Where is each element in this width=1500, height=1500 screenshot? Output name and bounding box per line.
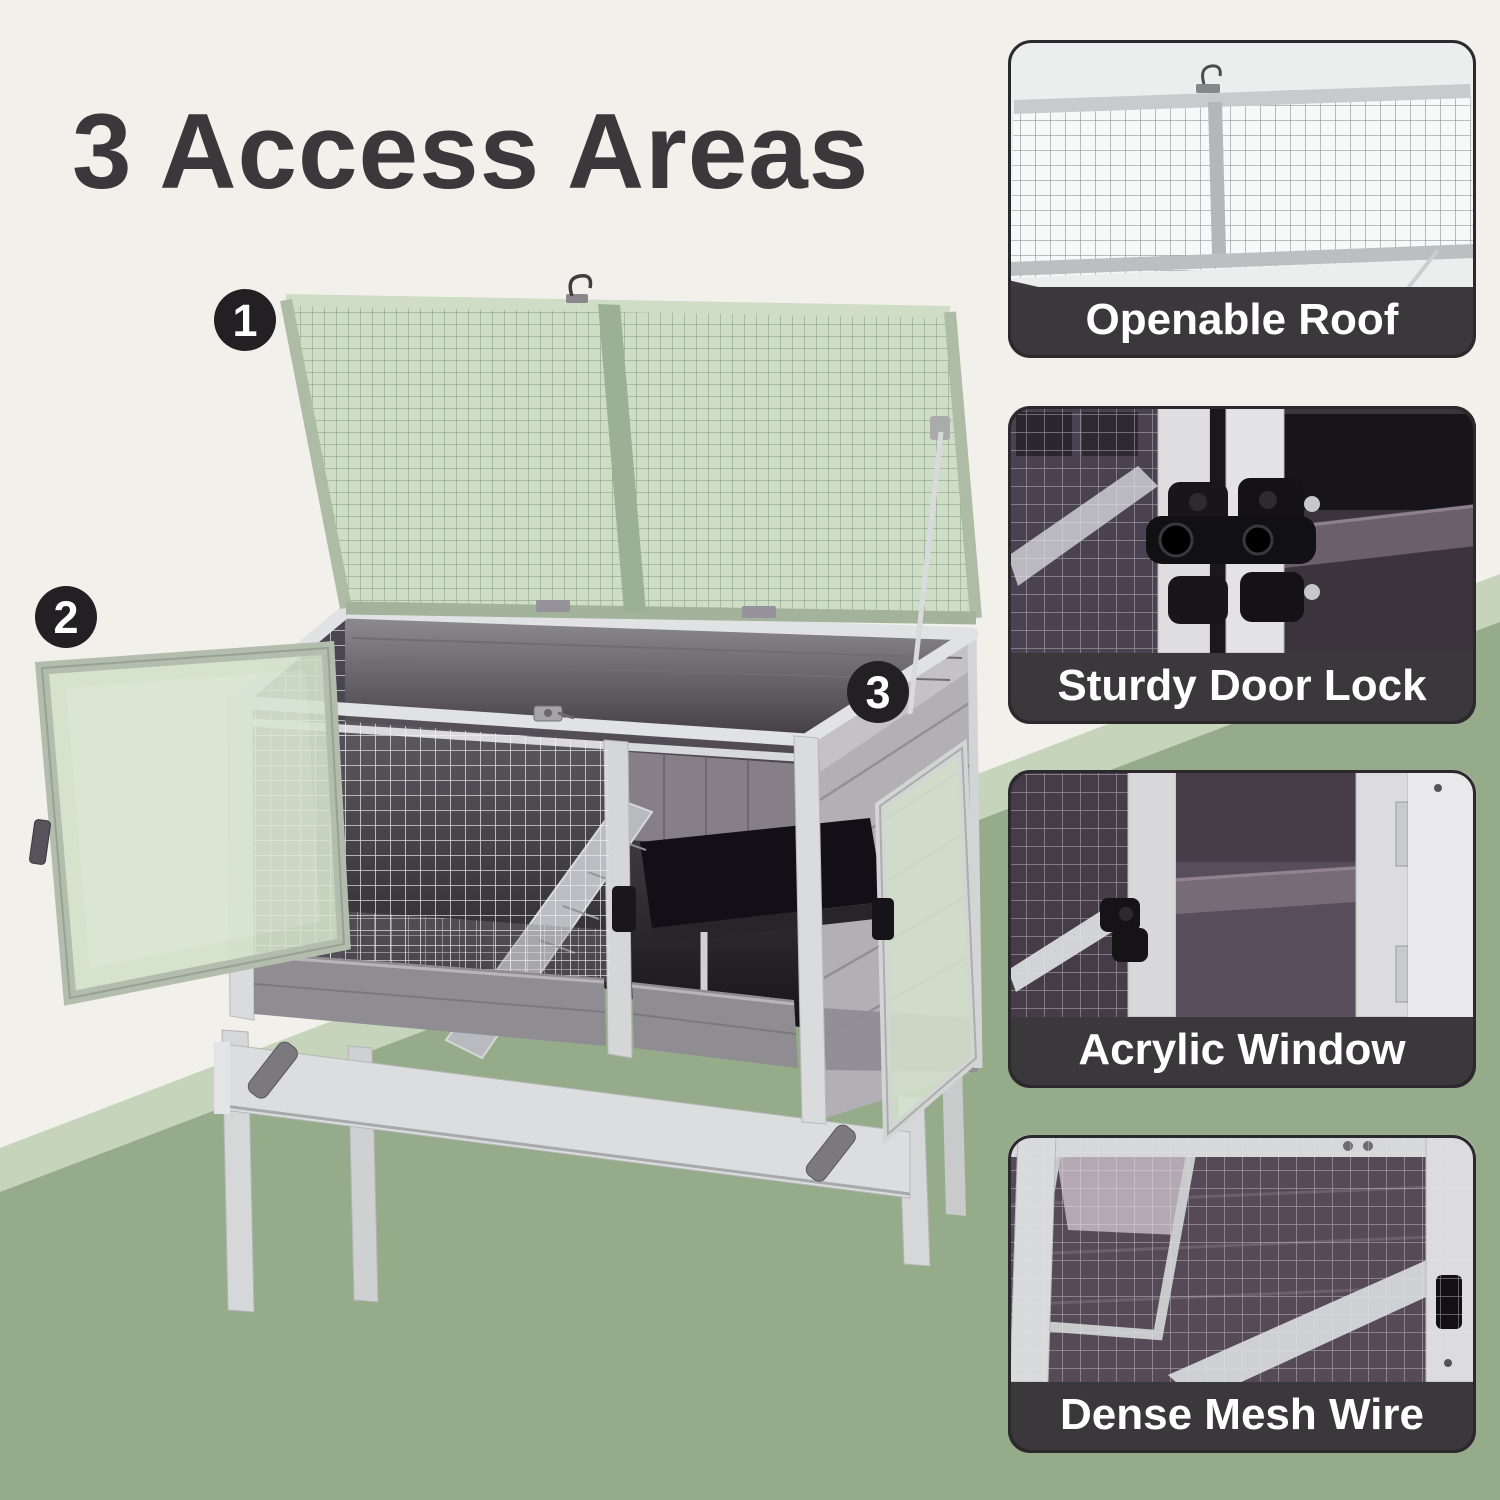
card4-mesh-overlay <box>1008 1135 1476 1382</box>
badge-2-number: 2 <box>53 592 78 643</box>
badge-1: 1 <box>214 289 276 351</box>
card-photo-sturdy-door-lock: Sturdy Door Lock <box>1008 406 1476 724</box>
card3-silver-hinge-bottom <box>1396 946 1408 1002</box>
caption-label-openable-roof: Openable Roof <box>1086 295 1399 344</box>
caption-label-dense-mesh-wire: Dense Mesh Wire <box>1060 1390 1424 1439</box>
center-post-latch <box>612 886 636 932</box>
card-photo-dense-mesh-wire: Dense Mesh Wire <box>1008 1135 1476 1453</box>
infographic-canvas: 3 Access Areas <box>0 0 1500 1500</box>
caption-label-sturdy-door-lock: Sturdy Door Lock <box>1057 661 1427 710</box>
badge-3: 3 <box>847 661 909 723</box>
front-door-open <box>872 748 976 1134</box>
feature-card-openable-roof: Openable Roof <box>1008 40 1476 358</box>
feature-card-sturdy-door-lock: Sturdy Door Lock <box>1008 406 1476 724</box>
feature-card-acrylic-window: Acrylic Window <box>1008 770 1476 1088</box>
caption-label-acrylic-window: Acrylic Window <box>1078 1025 1406 1074</box>
card3-silver-hinge-top <box>1396 802 1408 866</box>
badge-1-number: 1 <box>232 295 257 346</box>
side-door-open <box>29 648 344 998</box>
badge-2: 2 <box>35 586 97 648</box>
product-infographic: 3 Access Areas <box>0 0 1500 1500</box>
roof-hinge-left <box>536 600 570 612</box>
feature-card-dense-mesh-wire: Dense Mesh Wire <box>1008 1135 1476 1453</box>
card-photo-acrylic-window: Acrylic Window <box>1008 770 1476 1088</box>
roof-hinge-right <box>742 606 776 618</box>
front-door-acrylic <box>880 748 976 1134</box>
badge-3-number: 3 <box>865 667 890 718</box>
front-door-latch <box>872 898 894 940</box>
card-photo-openable-roof: Openable Roof <box>1008 40 1476 358</box>
page-title: 3 Access Areas <box>72 91 869 211</box>
